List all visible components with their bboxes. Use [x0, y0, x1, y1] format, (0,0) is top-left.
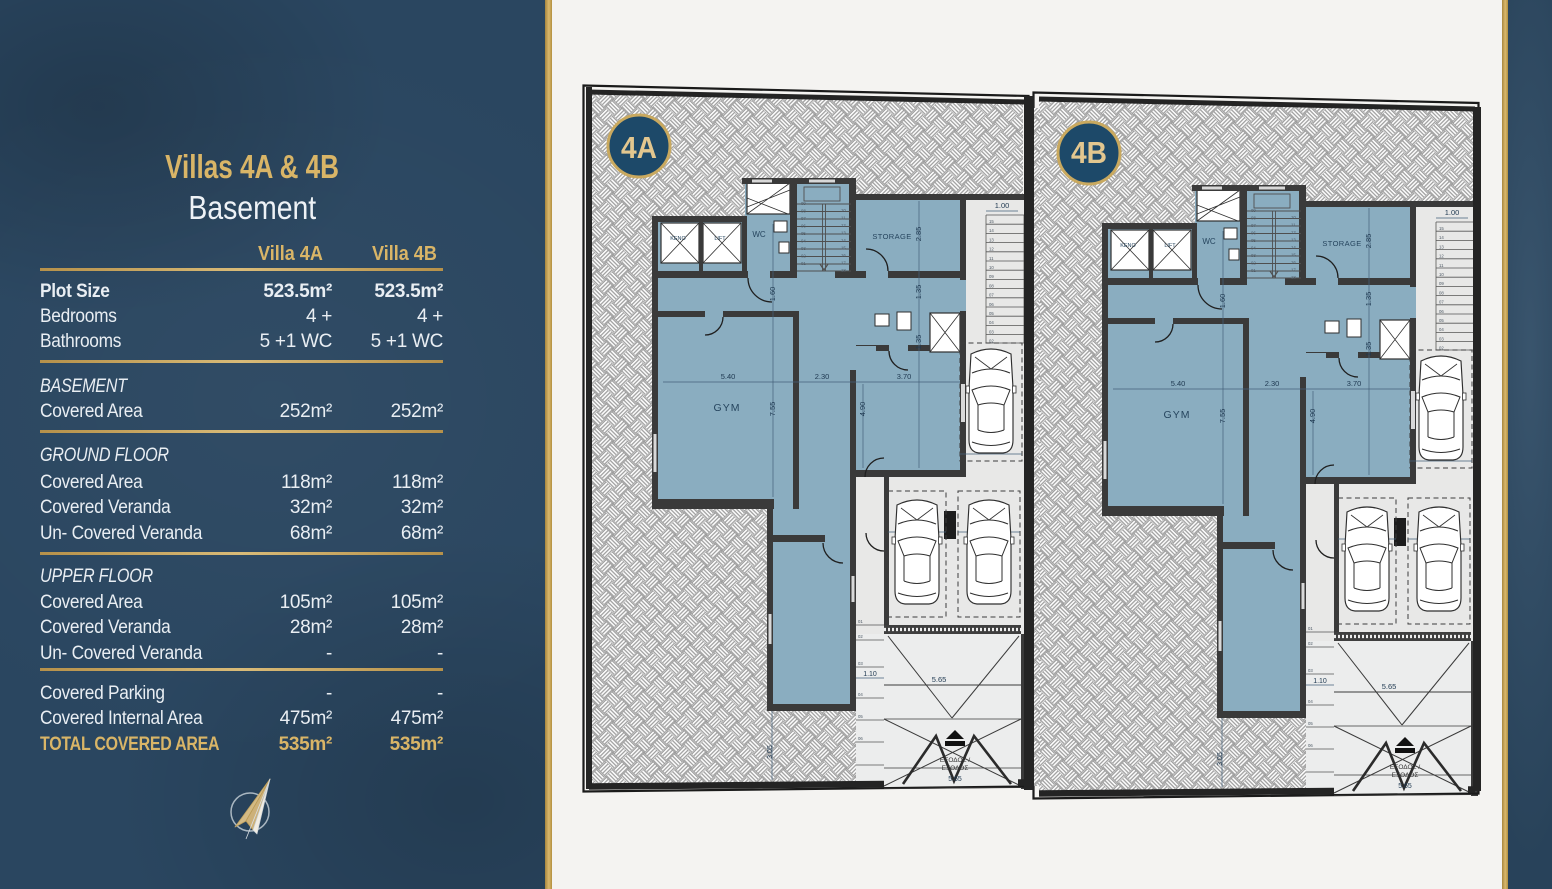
- svg-text:4A: 4A: [621, 130, 657, 165]
- svg-text:4B: 4B: [1071, 135, 1107, 170]
